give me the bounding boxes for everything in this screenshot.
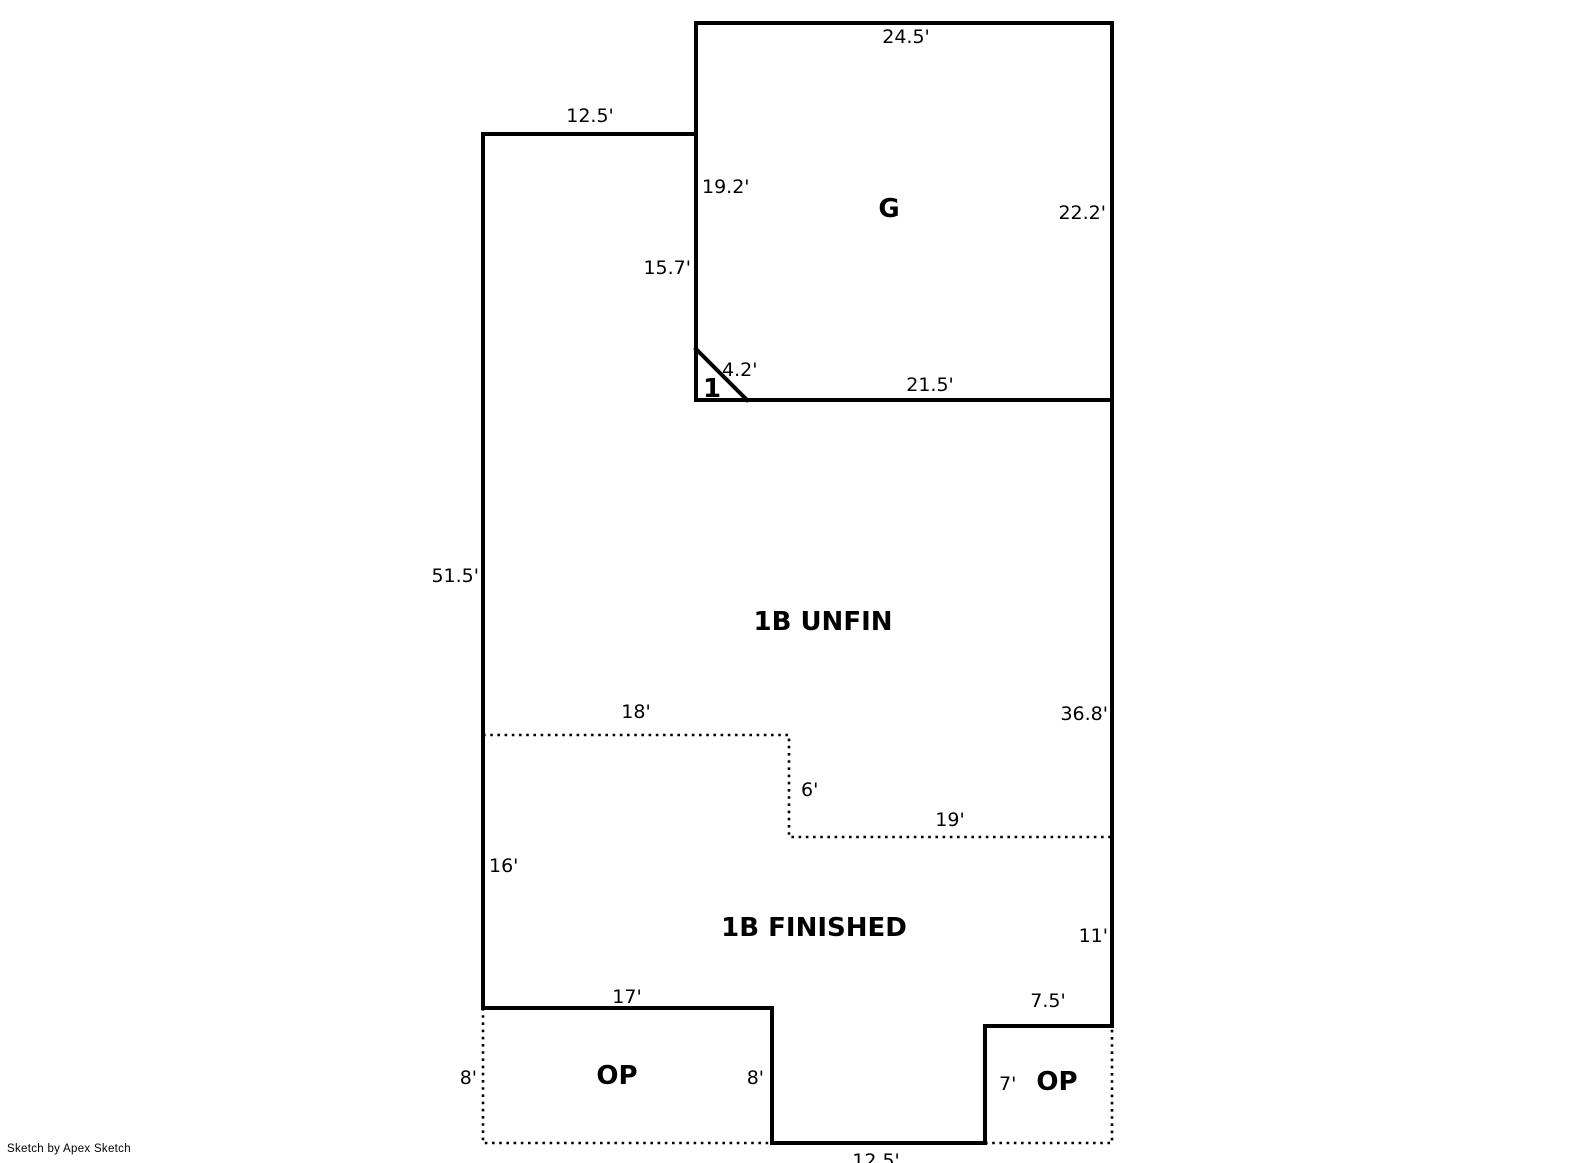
dim-left-wall: 51.5' bbox=[431, 565, 479, 587]
sketch-credit: Sketch by Apex Sketch bbox=[7, 1143, 131, 1155]
dim-op-left-inner-8: 8' bbox=[747, 1067, 764, 1089]
dim-divider-drop: 6' bbox=[801, 779, 818, 801]
area-label-1b-unfin: 1B UNFIN bbox=[753, 607, 892, 637]
area-label-op-left: OP bbox=[596, 1061, 637, 1091]
area-label-1b-finished: 1B FINISHED bbox=[721, 913, 907, 943]
dim-bottom-7-5: 7.5' bbox=[1030, 990, 1065, 1012]
area-label-op-right: OP bbox=[1036, 1067, 1077, 1097]
wall-garage-interior bbox=[696, 134, 1112, 400]
area-label-garage: G bbox=[878, 194, 899, 224]
dim-divider-top: 18' bbox=[621, 701, 650, 723]
dim-corner-diagonal: 4.2' bbox=[722, 359, 757, 381]
dim-garage-bottom: 21.5' bbox=[906, 374, 954, 396]
dim-unfin-upper-left: 15.7' bbox=[643, 257, 691, 279]
dim-bottom-17: 17' bbox=[612, 986, 641, 1008]
outline-main bbox=[483, 23, 1112, 1143]
dim-top-offset: 12.5' bbox=[566, 105, 614, 127]
dim-right-wall-lower: 36.8' bbox=[1060, 703, 1108, 725]
dim-garage-right: 22.2' bbox=[1058, 202, 1106, 224]
dim-left-wall-16: 16' bbox=[489, 855, 518, 877]
floorplan-stage: 12.5'24.5'19.2'22.2'15.7'4.2'21.5'51.5'1… bbox=[0, 0, 1585, 1163]
dim-right-wall-11: 11' bbox=[1079, 925, 1108, 947]
area-label-corner-1: 1 bbox=[703, 374, 721, 404]
dim-garage-top: 24.5' bbox=[882, 26, 930, 48]
floorplan-svg: 12.5'24.5'19.2'22.2'15.7'4.2'21.5'51.5'1… bbox=[0, 0, 1585, 1163]
dim-garage-left: 19.2' bbox=[702, 176, 750, 198]
dim-divider-bottom: 19' bbox=[935, 809, 964, 831]
divider-basement-dotted bbox=[483, 735, 1112, 837]
dim-op-right-7: 7' bbox=[999, 1073, 1016, 1095]
dim-bottom-12-5: 12.5' bbox=[852, 1150, 900, 1163]
dim-op-left-8: 8' bbox=[460, 1067, 477, 1089]
